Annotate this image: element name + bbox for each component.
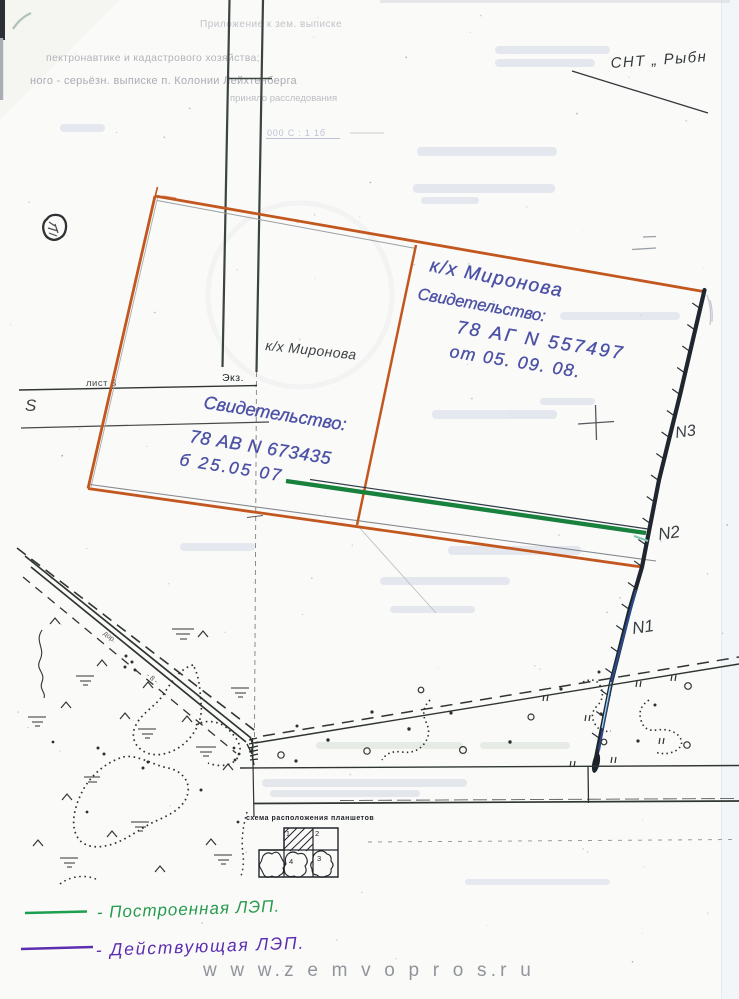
- svg-text:N2: N2: [657, 522, 682, 544]
- svg-text:000 С : 1 1б: 000 С : 1 1б: [267, 128, 326, 138]
- svg-text:3: 3: [317, 854, 321, 863]
- svg-text:1: 1: [286, 831, 290, 838]
- svg-text:N1: N1: [631, 616, 655, 638]
- svg-text:4: 4: [289, 857, 293, 866]
- svg-text:приняло расследования: приняло расследования: [230, 93, 337, 104]
- svg-text:w w w.z e m v o p r o s.r u: w w w.z e m v o p r o s.r u: [202, 960, 535, 981]
- svg-text:ного - серьёзн. выписке п. Кол: ного - серьёзн. выписке п. Колонии Лейхт…: [30, 75, 298, 87]
- svg-text:Приложение к зем. выписке: Приложение к зем. выписке: [200, 19, 342, 30]
- svg-text:схема расположения планшетов: схема расположения планшетов: [246, 815, 374, 822]
- svg-text:S: S: [25, 396, 37, 415]
- svg-text:N3: N3: [674, 422, 697, 442]
- svg-text:Экз.: Экз.: [222, 372, 244, 384]
- svg-text:2: 2: [315, 829, 319, 838]
